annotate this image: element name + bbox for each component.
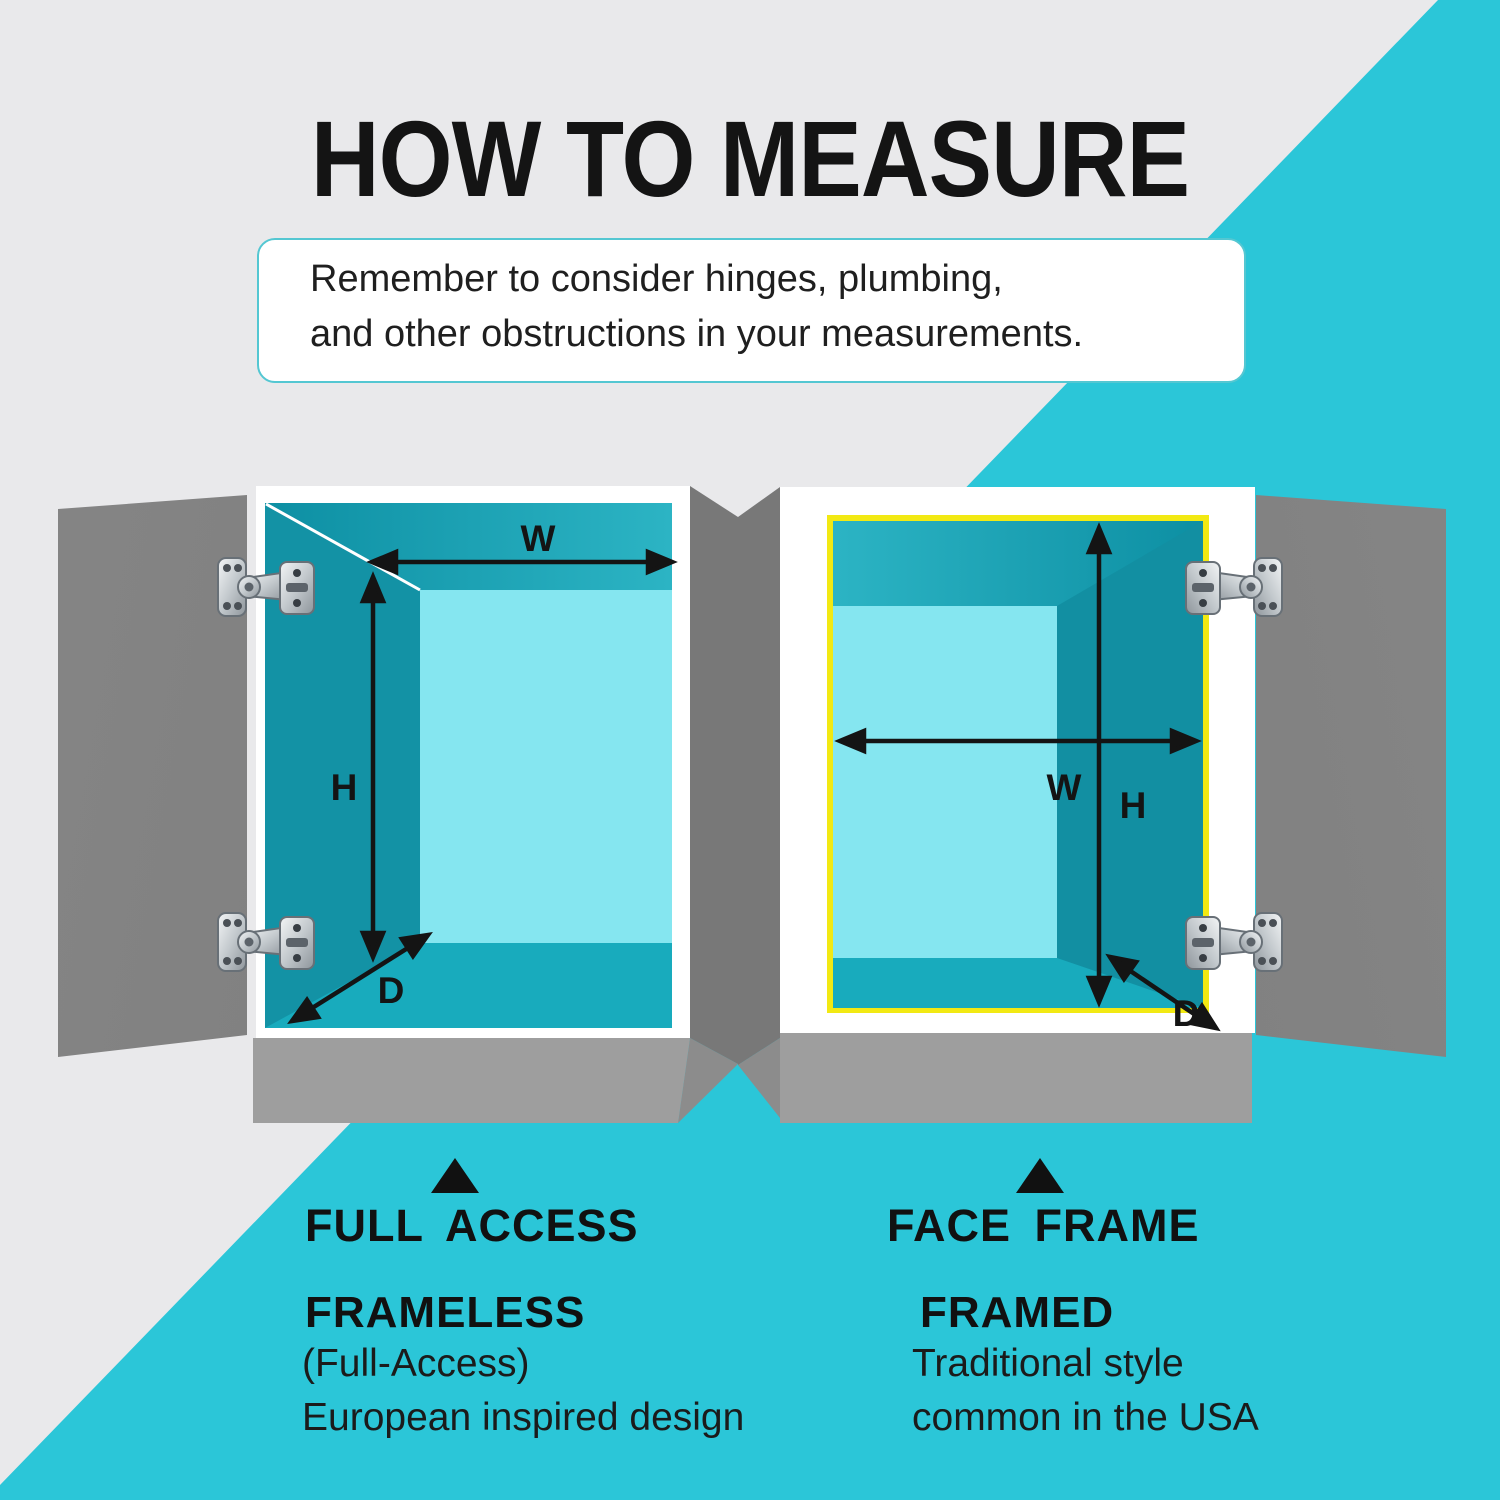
note-line-1: Remember to consider hinges, plumbing,: [310, 252, 1250, 307]
right-interior-back-wall: [833, 606, 1057, 958]
hinge-icon: [216, 907, 316, 977]
hinge-icon: [216, 552, 316, 622]
left-column-body-2: European inspired design: [302, 1396, 744, 1440]
depth-label-right: D: [1173, 993, 1200, 1035]
page-title: HOW TO MEASURE: [90, 96, 1410, 221]
up-triangle-marker: [1016, 1158, 1064, 1193]
right-column-heading: FACE FRAME: [887, 1200, 1200, 1252]
hinge-icon: [1184, 907, 1284, 977]
note-text: Remember to consider hinges, plumbing, a…: [310, 252, 1250, 362]
left-column-subheading: FRAMELESS: [305, 1288, 585, 1338]
hinge-icon: [1184, 552, 1284, 622]
left-column-body-1: (Full-Access): [302, 1342, 530, 1386]
note-line-2: and other obstructions in your measureme…: [310, 307, 1250, 362]
up-triangle-marker: [431, 1158, 479, 1193]
right-column-subheading: FRAMED: [920, 1288, 1114, 1338]
depth-label-left: D: [378, 970, 405, 1012]
left-cabinet-interior: [265, 503, 672, 1028]
width-label-right: W: [1047, 767, 1082, 809]
width-label-left: W: [521, 518, 556, 560]
height-label-left: H: [331, 767, 358, 809]
right-cabinet-interior: [833, 521, 1203, 1008]
left-column-heading: FULL ACCESS: [305, 1200, 639, 1252]
height-label-right: H: [1120, 785, 1147, 827]
infographic-how-to-measure: HOW TO MEASURE Remember to consider hing…: [0, 0, 1500, 1500]
left-interior-back-wall: [420, 590, 672, 943]
right-column-body-1: Traditional style: [912, 1342, 1184, 1386]
right-column-body-2: common in the USA: [912, 1396, 1259, 1440]
